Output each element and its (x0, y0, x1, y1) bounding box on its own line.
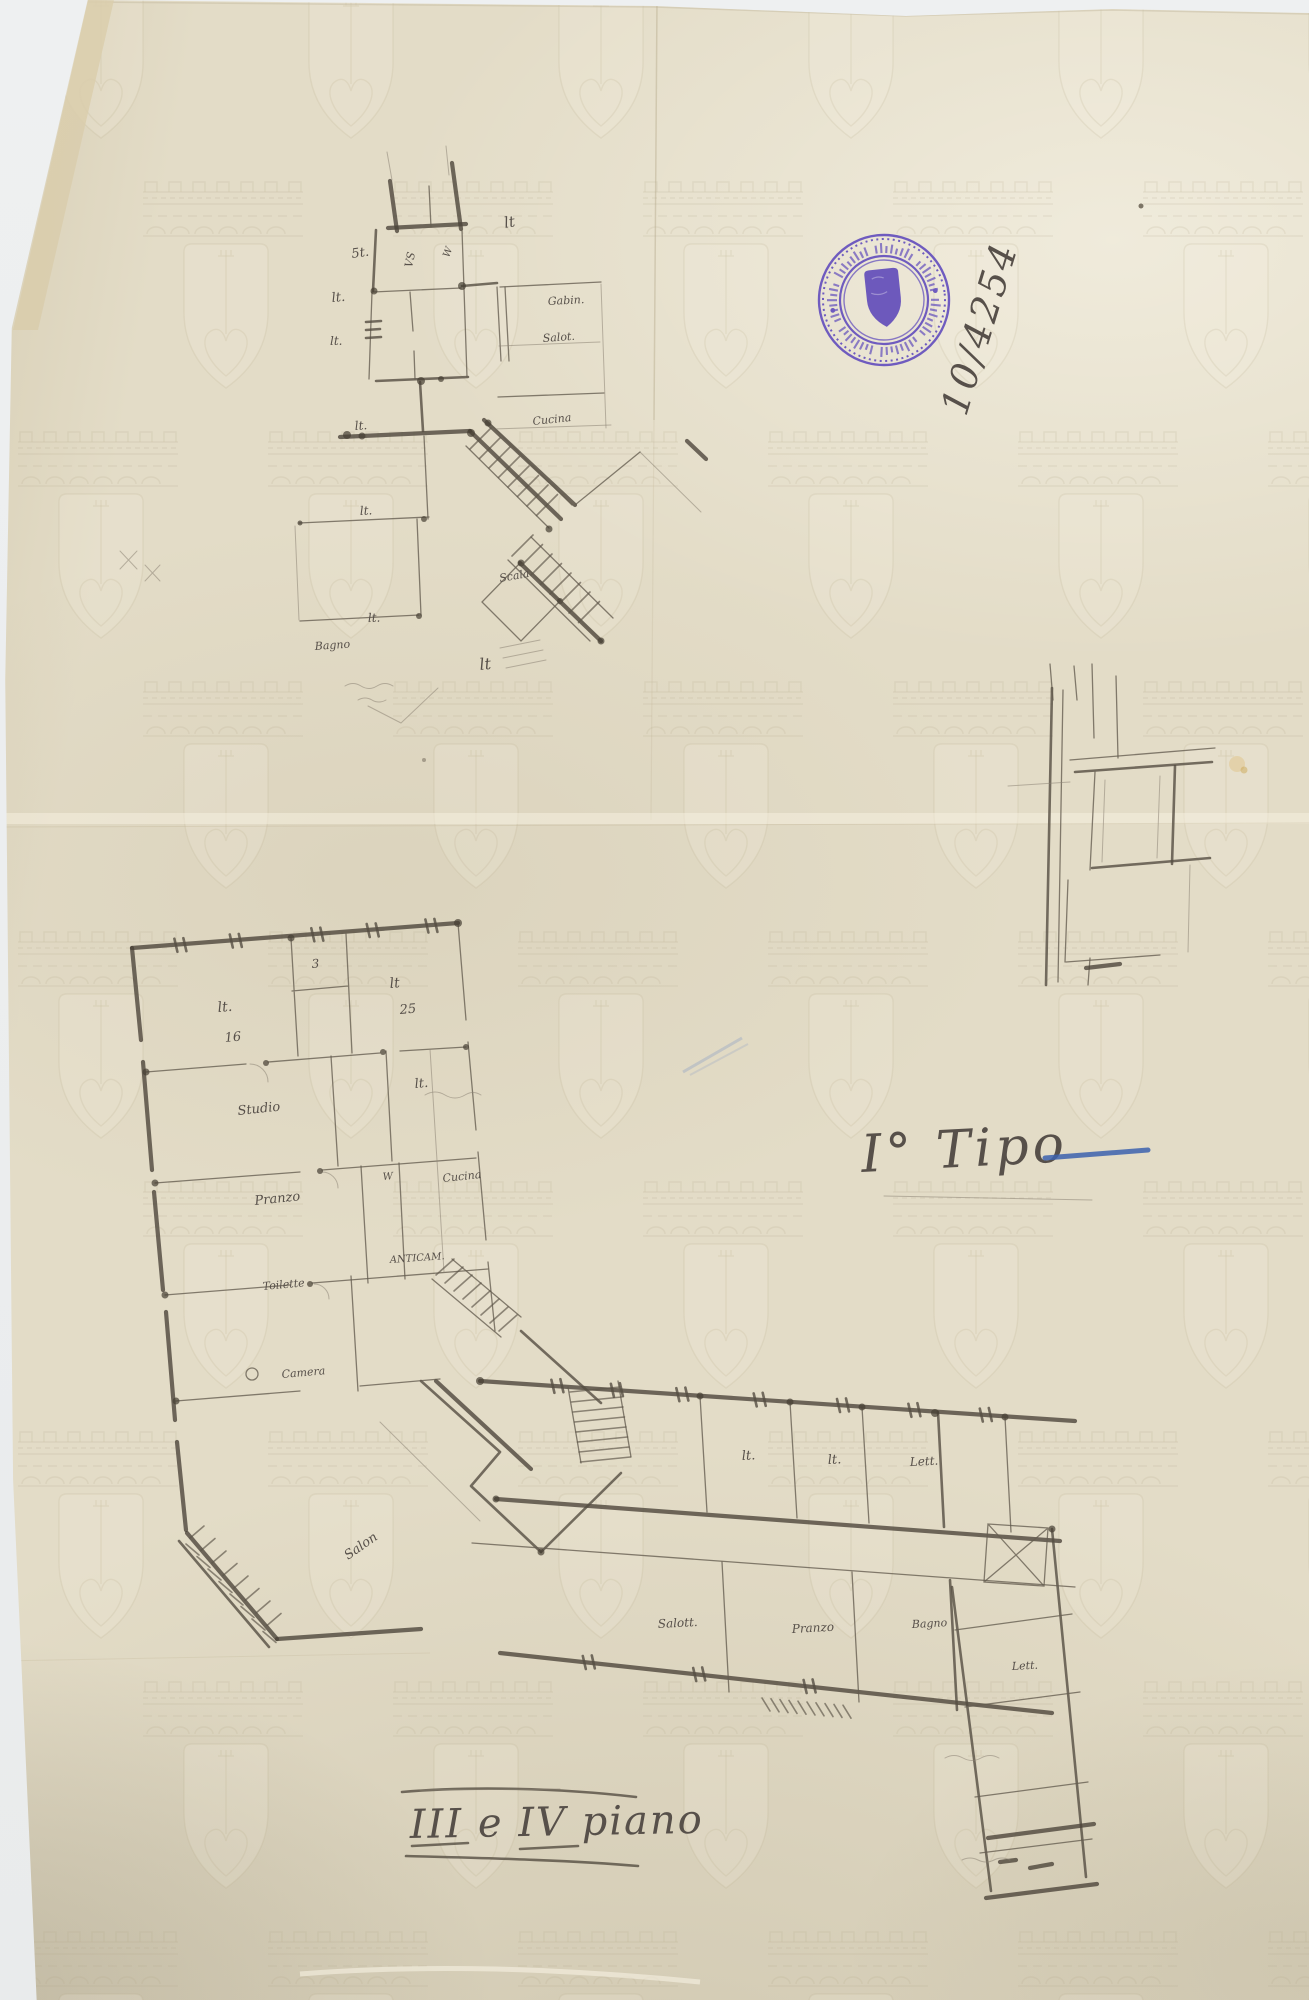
room-label: Bagno (910, 1616, 947, 1631)
room-label: Bagno (313, 638, 351, 654)
scanned-document-photo: 5t.ltVSWlt.Gabin.Salot.lt.lt.Cucinalt.lt… (0, 0, 1309, 2000)
room-label: Gabin. (547, 293, 584, 308)
room-label: lt. (331, 290, 346, 306)
room-label: 5t. (350, 245, 370, 262)
room-label: 3 (311, 956, 320, 971)
stamp-shield-emblem (864, 267, 904, 328)
room-label: Cucina (532, 411, 572, 428)
room-label: lt. (414, 1076, 429, 1092)
room-label: lt. (330, 334, 342, 348)
watermark-layer (18, 0, 1309, 2000)
room-label: Salott. (657, 1615, 698, 1631)
room-label: Scala (498, 567, 530, 585)
room-label: lt (478, 654, 492, 674)
room-label: lt. (741, 1448, 755, 1464)
type-annotation-text: I° Tipo (859, 1114, 1070, 1185)
room-label: Pranzo (790, 1620, 834, 1636)
room-label: Salot. (542, 330, 575, 345)
room-label: VS (402, 250, 418, 268)
room-label: lt. (354, 418, 367, 433)
room-label: lt. (368, 611, 381, 625)
room-label: Toilette (262, 1276, 305, 1293)
upper-floor-plan-sketch: 5t.ltVSWlt.Gabin.Salot.lt.lt.Cucinalt.lt… (120, 146, 706, 723)
room-label: lt. (217, 999, 233, 1016)
room-label: Studio (237, 1100, 281, 1119)
room-label: lt. (827, 1452, 841, 1468)
drawing-layer: 5t.ltVSWlt.Gabin.Salot.lt.lt.Cucinalt.lt… (0, 0, 1309, 2000)
room-label: lt. (359, 503, 372, 518)
room-label: lt (503, 212, 518, 232)
room-label: Lett. (908, 1454, 938, 1470)
room-label: Lett. (1010, 1659, 1038, 1673)
room-label: lt (389, 975, 401, 992)
stair-detail-sketch (1008, 664, 1215, 985)
caption-text: III e IV piano (408, 1797, 704, 1848)
paper-sheet: 5t.ltVSWlt.Gabin.Salot.lt.lt.Cucinalt.lt… (0, 0, 1309, 2000)
room-label: Camera (281, 1364, 326, 1381)
room-label: W (382, 1171, 394, 1183)
room-label: 25 (398, 1002, 417, 1018)
room-label: 16 (224, 1030, 242, 1046)
